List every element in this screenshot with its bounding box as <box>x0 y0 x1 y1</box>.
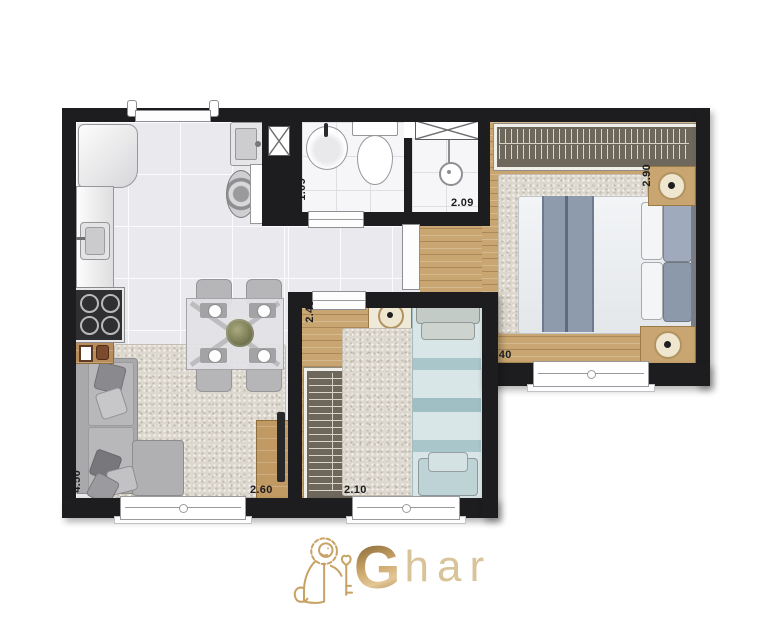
wall-bath-divider <box>404 138 412 214</box>
dimension-label-bedroom1-depth: 2.90 <box>641 164 653 187</box>
dimension-label-bedroom2-width: 2.10 <box>344 484 367 496</box>
wall-left <box>62 108 76 518</box>
wardrobe-rail <box>499 143 689 144</box>
bedroom1-window <box>533 361 649 387</box>
headboard-cushion <box>421 322 475 340</box>
tv-icon <box>277 412 285 482</box>
wall-bedroom2-east <box>482 292 498 518</box>
bed-band <box>413 398 481 412</box>
wall-right <box>696 108 710 386</box>
plate-icon <box>208 304 222 318</box>
laundry-faucet <box>255 141 261 147</box>
blanket-fold <box>565 196 568 332</box>
bench-pillow <box>428 452 468 472</box>
lamp-center <box>387 312 393 318</box>
refrigerator-icon <box>78 124 138 188</box>
bedroom1-wardrobe <box>494 124 700 170</box>
dimension-label-living-width: 2.60 <box>250 484 273 496</box>
dimension-label-living-depth: 4.50 <box>71 470 83 493</box>
bed-pillow <box>663 262 692 322</box>
crossed-cabinet-box <box>415 120 480 140</box>
dimension-label-bedroom2-depth: 2.40 <box>304 300 316 323</box>
plate-icon <box>208 349 222 363</box>
shower-head-icon <box>439 162 463 186</box>
bedroom2-window <box>352 496 460 520</box>
hanger-row <box>499 145 689 159</box>
washbasin-icon <box>306 126 348 170</box>
four-burner-stove-icon <box>74 288 124 342</box>
bedroom1-door <box>402 224 420 290</box>
table-plant-icon <box>226 319 254 347</box>
bathroom-door <box>308 211 364 228</box>
floorplan-image: 1.09 2.09 2.90 2.40 2.40 2.10 4.50 2.60 … <box>0 0 778 640</box>
shower-stem <box>448 140 450 164</box>
shower-head-center <box>447 170 451 174</box>
plate-icon <box>257 304 271 318</box>
decor-vase-icon <box>96 345 109 360</box>
basin-faucet <box>324 123 328 137</box>
wall-living-divider <box>288 292 302 518</box>
bed-band <box>413 358 481 370</box>
bedroom1-doorway-wood <box>482 226 490 292</box>
lion-key-icon <box>286 530 360 606</box>
sink-faucet <box>75 237 85 240</box>
sink-basin <box>85 227 105 255</box>
laundry-basin <box>235 128 257 160</box>
burner-icon <box>101 316 120 335</box>
bed-pillow <box>663 202 692 262</box>
burner-icon <box>80 294 99 313</box>
bed-pillow <box>641 262 663 320</box>
dimension-label-bedroom1-width: 2.40 <box>489 349 512 361</box>
brand-logo: Ghar <box>0 530 778 606</box>
bedroom2-door <box>312 291 366 310</box>
sofa-chaise <box>132 440 184 496</box>
nightstand <box>640 326 696 364</box>
brand-text: har <box>405 542 493 594</box>
bedroom2-rug <box>342 328 418 496</box>
lamp-center <box>668 182 675 189</box>
dimension-label-bath-total: 2.09 <box>451 197 474 209</box>
picture-frame-icon <box>79 345 93 362</box>
bed-blanket <box>542 196 594 332</box>
crossed-duct-box <box>268 126 290 156</box>
entry-door <box>135 110 211 122</box>
laundry-sink-icon <box>230 122 264 166</box>
dimension-label-bathroom: 1.09 <box>296 178 308 201</box>
hanger-row <box>499 129 689 143</box>
wardrobe-rail <box>332 373 333 491</box>
brand-letter-g: G <box>354 538 401 598</box>
window-latch <box>179 504 188 513</box>
kitchen-sink-icon <box>80 222 110 260</box>
bed-band <box>413 440 481 452</box>
window-latch <box>587 370 596 379</box>
window-latch <box>402 504 411 513</box>
lamp-center <box>664 341 671 348</box>
door-line <box>309 219 363 220</box>
hallway-wood-floor <box>420 222 490 292</box>
toilet-icon <box>352 121 398 136</box>
door-line <box>313 300 365 301</box>
nightstand <box>648 166 696 206</box>
bed-pillow <box>641 202 663 260</box>
burner-icon <box>80 316 99 335</box>
living-room-window <box>120 496 246 520</box>
wall-shower-east <box>478 108 490 226</box>
plate-icon <box>257 349 271 363</box>
burner-icon <box>101 294 120 313</box>
hallway-tile-floor <box>288 226 420 292</box>
